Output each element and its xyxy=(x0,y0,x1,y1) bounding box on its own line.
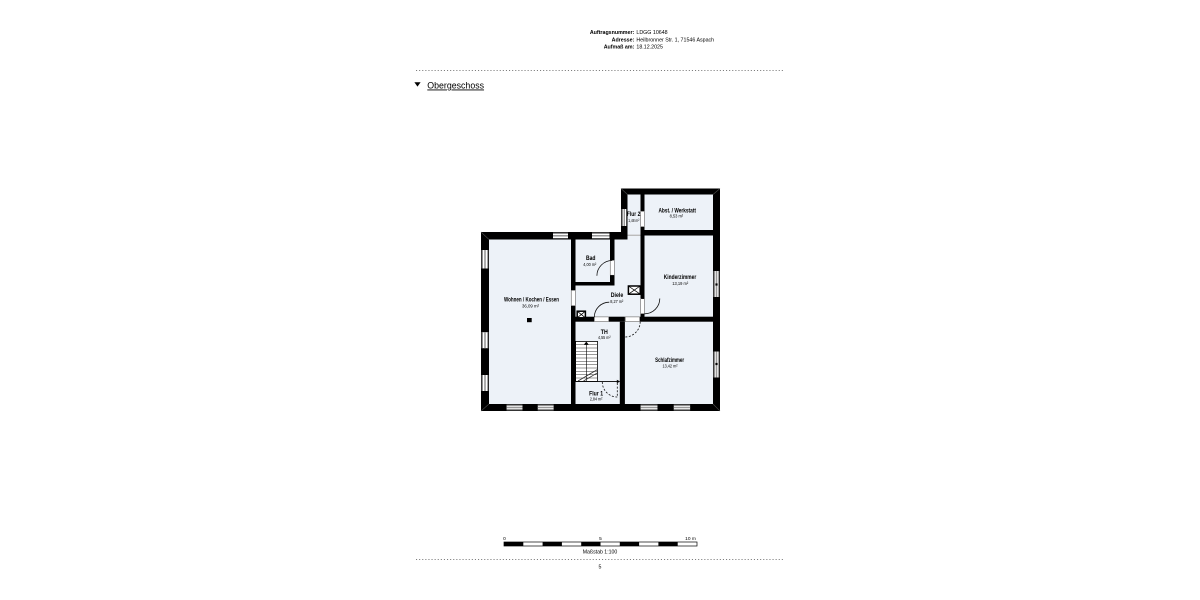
svg-text:Bad: Bad xyxy=(586,255,596,262)
svg-text:13,42 m²: 13,42 m² xyxy=(663,364,678,369)
svg-text:LDGG 10648: LDGG 10648 xyxy=(636,30,667,36)
svg-text:8,27 m²: 8,27 m² xyxy=(610,299,623,304)
svg-text:0: 0 xyxy=(503,536,506,542)
svg-text:4,55 m²: 4,55 m² xyxy=(598,335,611,340)
svg-text:Maßstab 1:100: Maßstab 1:100 xyxy=(583,550,618,556)
svg-text:Wohnen / Kochen / Essen: Wohnen / Kochen / Essen xyxy=(504,296,559,303)
svg-text:Heilbronner Str. 1, 71546 Aspa: Heilbronner Str. 1, 71546 Aspach xyxy=(636,37,714,43)
svg-text:13,19 m²: 13,19 m² xyxy=(672,281,688,286)
svg-text:4,00 m²: 4,00 m² xyxy=(583,262,596,267)
svg-text:18.12.2025: 18.12.2025 xyxy=(636,44,663,50)
svg-text:5: 5 xyxy=(599,565,602,571)
svg-text:5: 5 xyxy=(599,536,602,542)
svg-text:8,53 m²: 8,53 m² xyxy=(670,214,684,219)
svg-text:Kinderzimmer: Kinderzimmer xyxy=(664,274,697,281)
svg-text:Obergeschoss: Obergeschoss xyxy=(427,81,484,91)
svg-text:1,48 m²: 1,48 m² xyxy=(628,218,639,223)
svg-text:Auftragsnummer:: Auftragsnummer: xyxy=(590,30,635,36)
svg-text:Aufmaß am:: Aufmaß am: xyxy=(604,44,635,50)
svg-text:Adresse:: Adresse: xyxy=(612,37,635,43)
svg-text:2,84 m²: 2,84 m² xyxy=(590,397,603,402)
svg-text:36,09 m²: 36,09 m² xyxy=(522,304,540,309)
svg-text:10 m: 10 m xyxy=(685,536,696,542)
